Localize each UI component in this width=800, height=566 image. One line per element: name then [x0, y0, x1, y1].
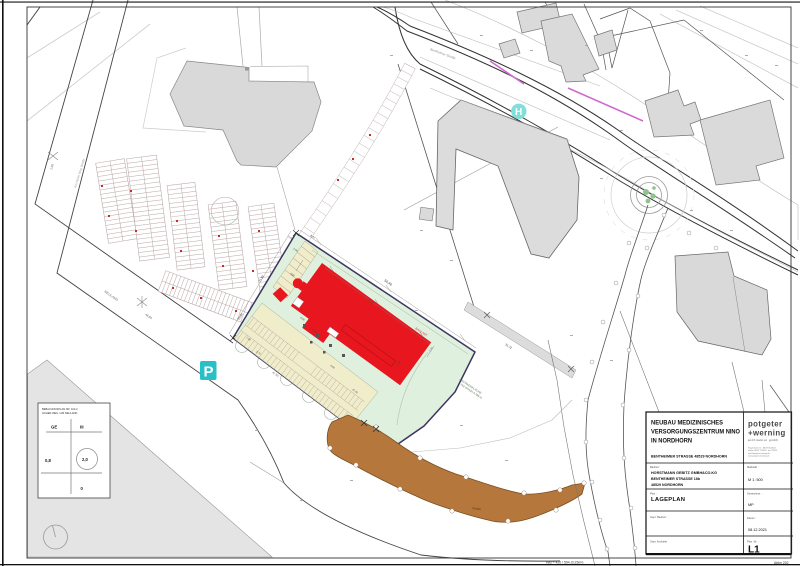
svg-text:L1: L1 — [748, 545, 760, 556]
svg-text:Bauherr:: Bauherr: — [650, 465, 660, 469]
svg-text:Gepr. Bauherr :: Gepr. Bauherr : — [650, 515, 668, 519]
svg-text:+werning: +werning — [748, 429, 786, 438]
svg-text:H/B = 420 / 594 (0.25m²): H/B = 420 / 594 (0.25m²) — [546, 561, 583, 565]
svg-text:BEBAUUNGSPLAN NR. 102-2: BEBAUUNGSPLAN NR. 102-2 — [42, 407, 78, 411]
svg-text:Gepr. Architekt: Gepr. Architekt — [650, 540, 667, 544]
svg-text:III: III — [80, 425, 84, 430]
svg-text:Plan :: Plan : — [650, 492, 657, 496]
svg-text:Gezeichnet :: Gezeichnet : — [747, 492, 762, 496]
svg-text:HOHER WEG / AM NEULAND: HOHER WEG / AM NEULAND — [42, 411, 77, 415]
svg-text:LAGEPLAN: LAGEPLAN — [651, 497, 685, 503]
svg-text:0,8: 0,8 — [45, 458, 51, 463]
svg-text:BENTHEIMER STRASSE 18b: BENTHEIMER STRASSE 18b — [651, 477, 701, 481]
svg-text:Hauptstraße 11 · 48529 Nordhor: Hauptstraße 11 · 48529 Nordhorn — [748, 447, 776, 450]
svg-text:Plan -Nr. :: Plan -Nr. : — [747, 540, 759, 544]
svg-text:MP: MP — [748, 503, 754, 507]
svg-text:www.potgeter-werning.de: www.potgeter-werning.de — [748, 455, 769, 458]
svg-text:Maßstab :: Maßstab : — [747, 465, 759, 469]
svg-text:info@potgeter-werning.de: info@potgeter-werning.de — [748, 452, 770, 455]
svg-text:GE: GE — [51, 425, 57, 430]
svg-text:H: H — [515, 107, 522, 118]
svg-text:potgeter: potgeter — [748, 420, 782, 429]
svg-text:BENTHEIMER STRASSE 48529 NORD: BENTHEIMER STRASSE 48529 NORDHORN — [651, 455, 727, 459]
svg-text:NEUBAU MEDIZINISCHES: NEUBAU MEDIZINISCHES — [651, 420, 724, 427]
svg-text:48529 NORDHORN: 48529 NORDHORN — [651, 483, 684, 487]
svg-text:M 1 :500: M 1 :500 — [748, 478, 763, 482]
svg-text:Datum :: Datum : — [747, 516, 756, 520]
svg-text:P: P — [204, 364, 214, 381]
svg-text:VERSORGUNGSZENTRUM NINO: VERSORGUNGSZENTRUM NINO — [651, 429, 740, 436]
svg-text:IN NORDHORN: IN NORDHORN — [651, 438, 692, 445]
svg-text:2,0: 2,0 — [82, 457, 88, 462]
svg-text:HORSTMANN GEBITZ GMBH&CO.KG: HORSTMANN GEBITZ GMBH&CO.KG — [651, 471, 717, 475]
svg-text:telefon 05921 713340 · fax 713: telefon 05921 713340 · fax 713341 — [748, 449, 777, 452]
svg-text:08.12.2021: 08.12.2021 — [748, 528, 767, 532]
svg-text:architektur gmbh: architektur gmbh — [748, 438, 778, 442]
